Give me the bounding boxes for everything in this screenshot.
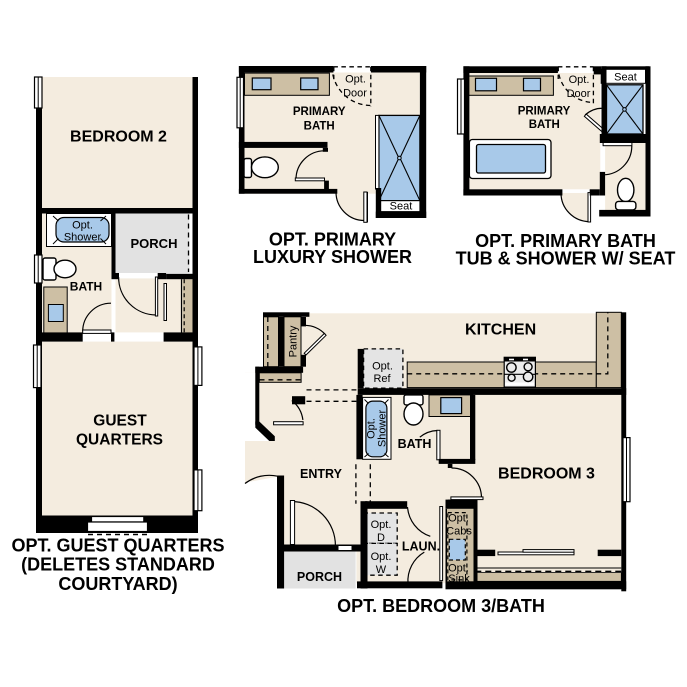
svg-text:Opt.: Opt. bbox=[345, 74, 366, 86]
svg-text:Cabs: Cabs bbox=[446, 526, 472, 538]
svg-text:Door: Door bbox=[567, 88, 591, 100]
svg-text:Opt.: Opt. bbox=[448, 513, 469, 525]
svg-text:(DELETES STANDARD: (DELETES STANDARD bbox=[21, 555, 215, 575]
svg-text:Ref: Ref bbox=[373, 373, 391, 385]
svg-text:W: W bbox=[376, 564, 387, 576]
svg-text:TUB & SHOWER W/ SEAT: TUB & SHOWER W/ SEAT bbox=[456, 249, 676, 269]
svg-text:Opt.: Opt. bbox=[372, 361, 393, 373]
svg-text:Opt.: Opt. bbox=[371, 551, 392, 563]
svg-text:D: D bbox=[377, 532, 385, 544]
svg-text:Door: Door bbox=[343, 88, 367, 100]
svg-text:Shower: Shower bbox=[377, 410, 389, 448]
svg-text:COURTYARD): COURTYARD) bbox=[58, 574, 177, 594]
svg-text:BATH: BATH bbox=[398, 437, 432, 451]
svg-text:BATH: BATH bbox=[529, 119, 560, 131]
svg-text:GUEST: GUEST bbox=[93, 413, 147, 430]
svg-text:Seat: Seat bbox=[390, 201, 413, 213]
svg-text:OPT. BEDROOM 3/BATH: OPT. BEDROOM 3/BATH bbox=[337, 596, 545, 616]
svg-text:QUARTERS: QUARTERS bbox=[76, 432, 163, 449]
svg-text:Pantry: Pantry bbox=[288, 325, 300, 357]
svg-text:BEDROOM 2: BEDROOM 2 bbox=[70, 129, 167, 146]
svg-text:ENTRY: ENTRY bbox=[300, 467, 343, 481]
svg-text:OPT. GUEST QUARTERS: OPT. GUEST QUARTERS bbox=[11, 536, 224, 556]
svg-text:PRIMARY: PRIMARY bbox=[293, 106, 346, 118]
svg-text:Opt.: Opt. bbox=[569, 74, 590, 86]
svg-text:KITCHEN: KITCHEN bbox=[465, 322, 536, 339]
svg-text:LAUN.: LAUN. bbox=[402, 540, 440, 554]
svg-text:PORCH: PORCH bbox=[131, 236, 178, 251]
svg-text:BATH: BATH bbox=[304, 121, 335, 133]
svg-text:PRIMARY: PRIMARY bbox=[518, 105, 571, 117]
svg-text:LUXURY SHOWER: LUXURY SHOWER bbox=[253, 247, 412, 267]
svg-text:PORCH: PORCH bbox=[297, 570, 342, 584]
svg-text:Opt.: Opt. bbox=[72, 220, 93, 232]
svg-text:Shower: Shower bbox=[64, 231, 102, 243]
svg-text:BATH: BATH bbox=[70, 280, 102, 294]
svg-text:BEDROOM 3: BEDROOM 3 bbox=[498, 466, 595, 483]
svg-text:Seat: Seat bbox=[614, 72, 637, 84]
svg-text:Opt.: Opt. bbox=[371, 519, 392, 531]
